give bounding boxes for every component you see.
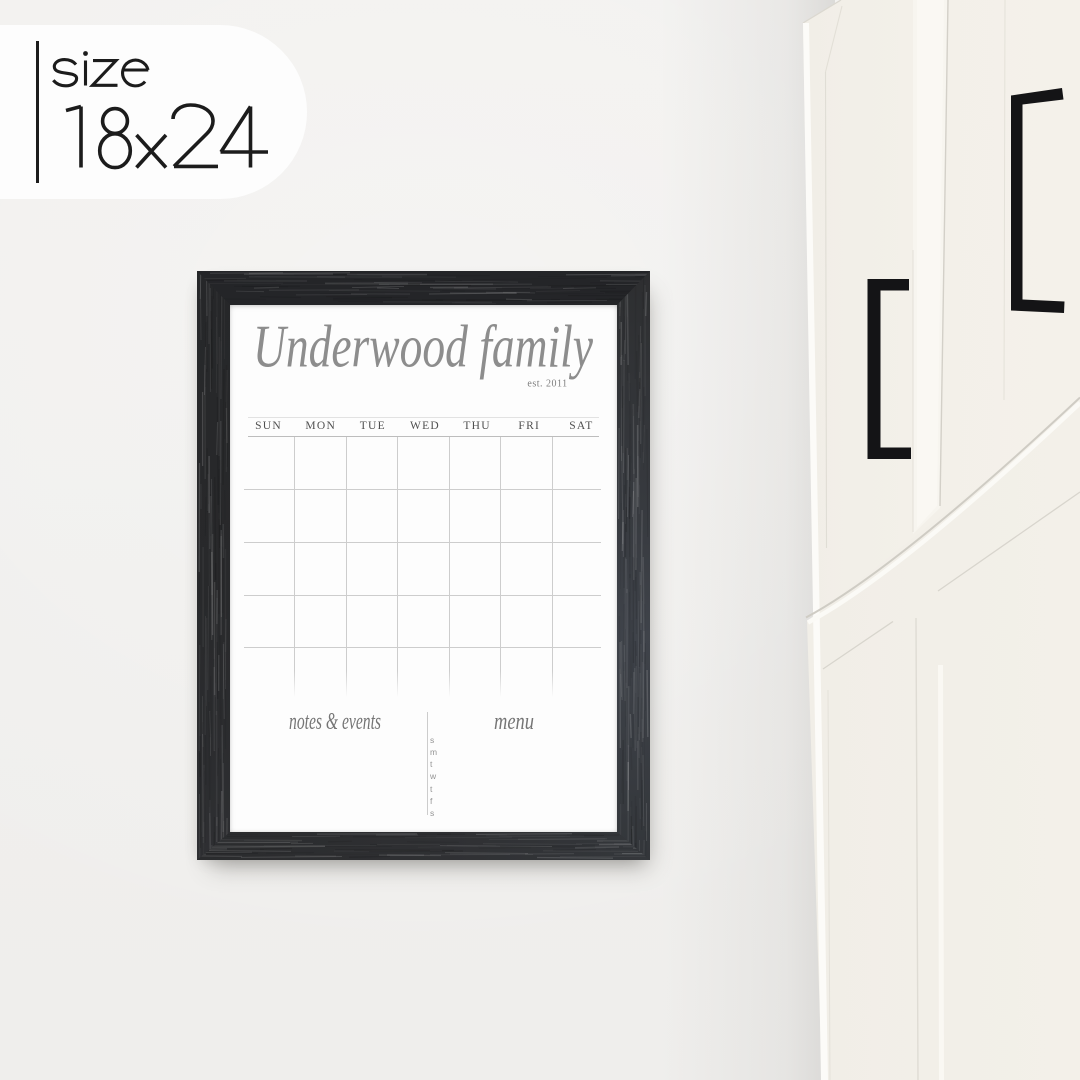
- svg-text:m: m: [430, 747, 437, 757]
- svg-text:t: t: [430, 759, 433, 769]
- svg-text:s: s: [430, 735, 434, 745]
- svg-text:s: s: [430, 808, 434, 818]
- svg-text:est. 2011: est. 2011: [527, 379, 567, 390]
- svg-text:w: w: [429, 771, 437, 781]
- svg-text:t: t: [430, 784, 433, 794]
- svg-text:Underwood family: Underwood family: [253, 314, 593, 380]
- svg-text:f: f: [430, 796, 433, 806]
- svg-text:menu: menu: [494, 709, 534, 735]
- svg-text:notes & events: notes & events: [289, 709, 381, 735]
